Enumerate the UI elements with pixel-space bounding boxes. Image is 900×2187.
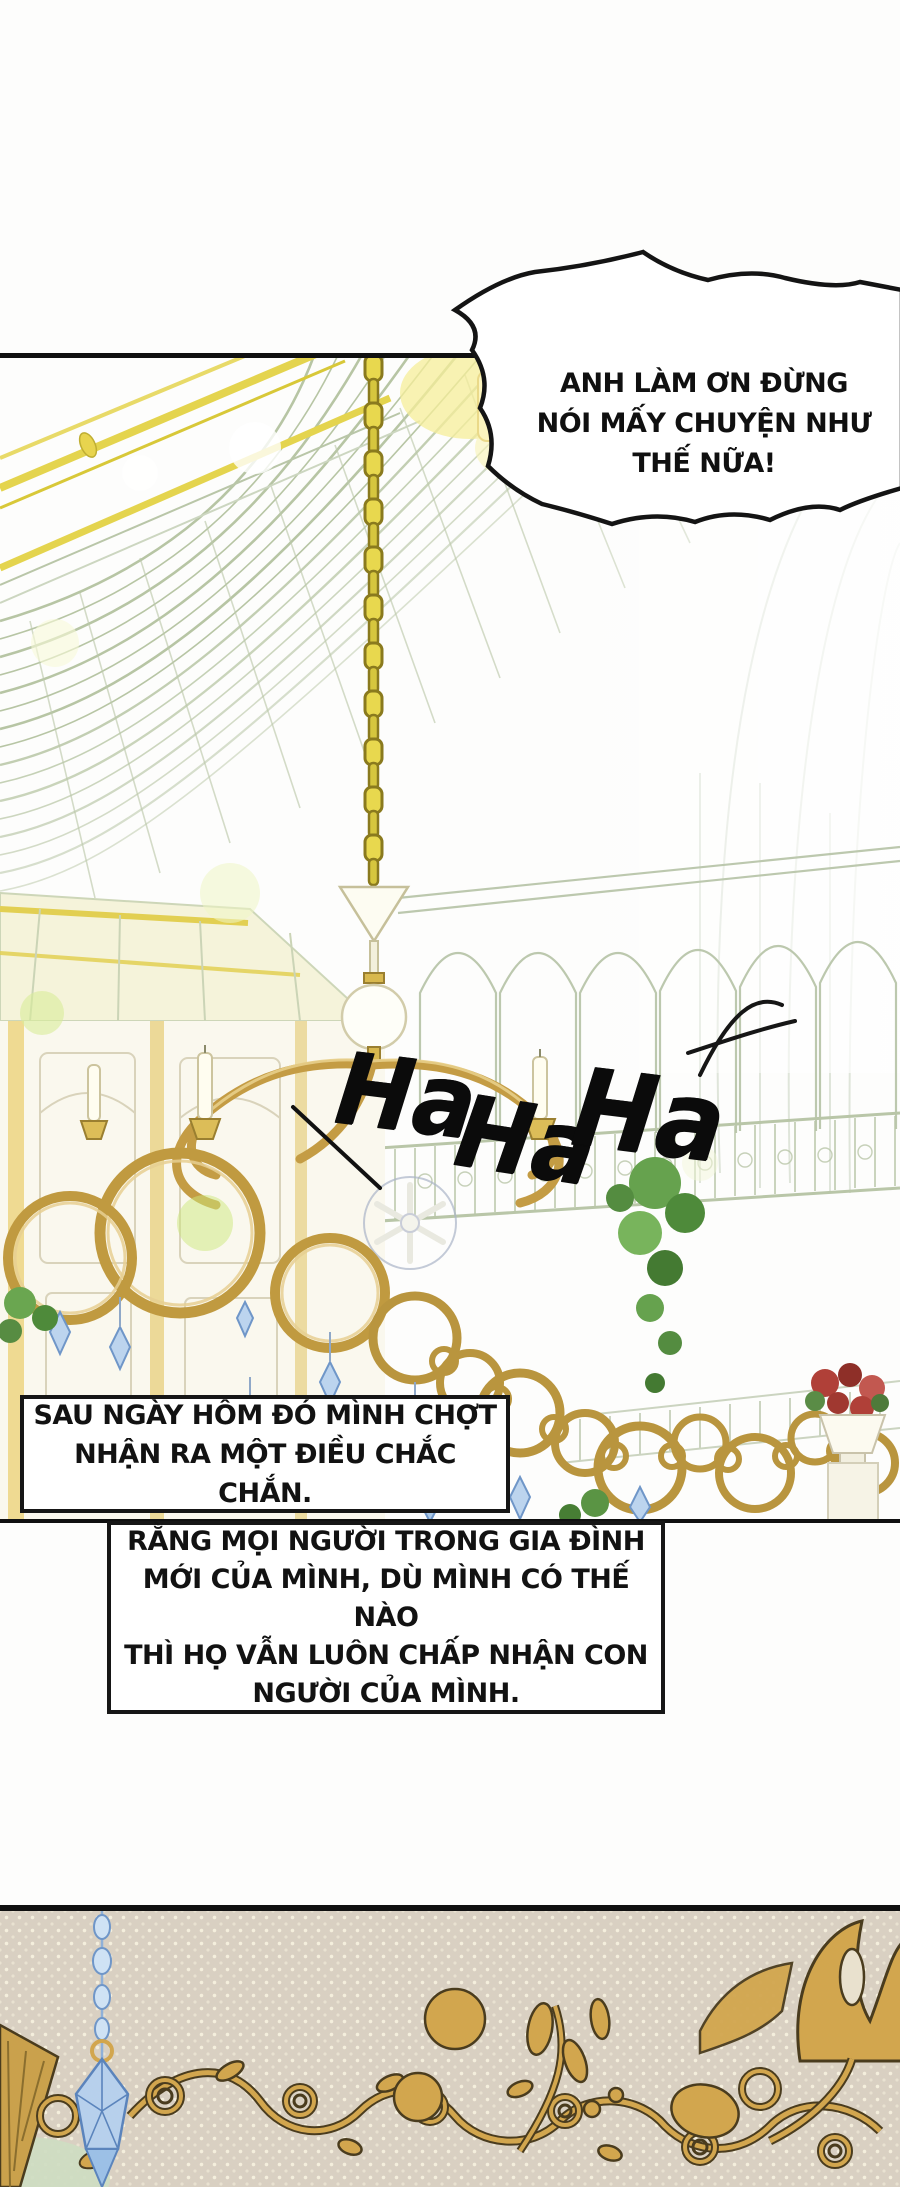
narration-line: MỚI CỦA MÌNH, DÙ MÌNH CÓ THẾ NÀO — [111, 1561, 661, 1637]
ornament-panel — [0, 1905, 900, 2187]
narration-line: SAU NGÀY HÔM ĐÓ MÌNH CHỢT — [24, 1396, 506, 1435]
narration-line: NGƯỜI CỦA MÌNH. — [111, 1675, 661, 1713]
narration-line: THÌ HỌ VẪN LUÔN CHẤP NHẬN CON — [111, 1637, 661, 1675]
speech-line: ANH LÀM ƠN ĐỪNG — [508, 364, 900, 404]
narration-box-2: RẰNG MỌI NGƯỜI TRONG GIA ĐÌNH MỚI CỦA MÌ… — [107, 1521, 665, 1714]
laugh-sfx-part: Ha — [566, 1044, 731, 1188]
crystal-strand — [76, 1911, 128, 2187]
comic-page: { "speech_bubble": { "lines": ["ANH LÀM … — [0, 0, 900, 2187]
roof-gold-beams — [0, 353, 420, 603]
speech-line: NÓI MẤY CHUYỆN NHƯ — [508, 404, 900, 444]
narration-line: NHẬN RA MỘT ĐIỀU CHẮC CHẮN. — [24, 1435, 506, 1513]
narration-line: RẰNG MỌI NGƯỜI TRONG GIA ĐÌNH — [111, 1523, 661, 1561]
gold-branch — [520, 1998, 623, 2151]
speech-line: THẾ NỮA! — [508, 444, 900, 484]
chandelier-chain — [340, 355, 408, 1063]
narration-box-1: SAU NGÀY HÔM ĐÓ MÌNH CHỢT NHẬN RA MỘT ĐI… — [20, 1395, 510, 1513]
speech-bubble-text: ANH LÀM ƠN ĐỪNG NÓI MẤY CHUYỆN NHƯ THẾ N… — [508, 364, 900, 484]
